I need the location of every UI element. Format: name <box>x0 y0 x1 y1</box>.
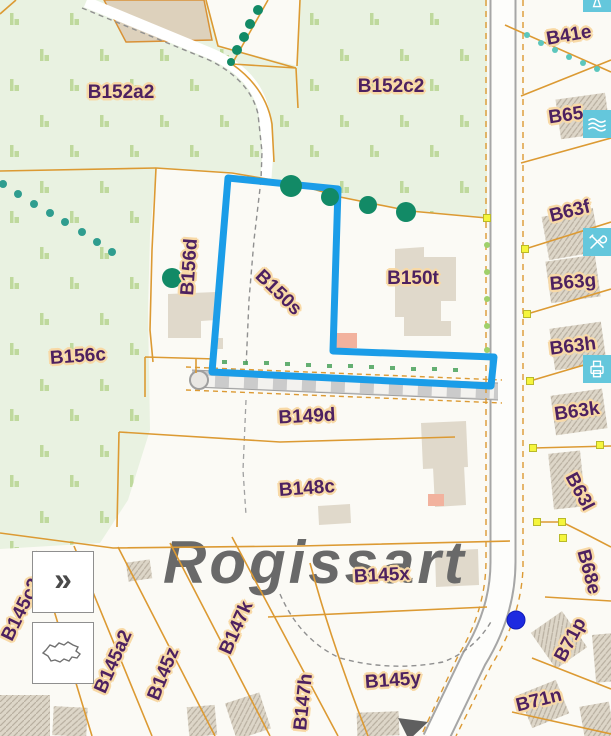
vertex-marker[interactable] <box>484 215 491 222</box>
vertex-marker[interactable] <box>530 445 537 452</box>
print-icon[interactable] <box>583 355 611 383</box>
tree-icon <box>484 347 490 353</box>
tree-icon <box>30 200 38 208</box>
tree-icon <box>14 190 22 198</box>
tree-icon <box>227 58 235 66</box>
map-viewer: Rogissart <box>0 0 611 736</box>
vertex-marker[interactable] <box>522 246 529 253</box>
place-name-label: Rogissart <box>163 529 467 596</box>
layers-icon[interactable] <box>583 110 611 138</box>
tree-icon <box>239 32 249 42</box>
route-icon[interactable] <box>583 0 611 12</box>
tree-icon <box>93 238 101 246</box>
tree-icon <box>396 202 416 222</box>
vertex-marker[interactable] <box>534 519 541 526</box>
expand-panel-button[interactable]: » <box>32 551 94 613</box>
tree-icon <box>280 175 302 197</box>
tree-icon <box>162 268 182 288</box>
tree-icon <box>538 40 544 46</box>
expand-chevrons-icon: » <box>54 563 72 595</box>
tree-icon <box>484 296 490 302</box>
overview-map-button[interactable] <box>32 622 94 684</box>
tree-icon <box>321 188 339 206</box>
tree-icon <box>524 32 530 38</box>
tree-icon <box>232 45 242 55</box>
tree-icon <box>552 47 558 53</box>
location-dot <box>507 611 525 629</box>
location-marker <box>507 611 525 629</box>
vertex-marker[interactable] <box>527 378 534 385</box>
vertex-marker[interactable] <box>524 311 531 318</box>
tree-icon <box>61 218 69 226</box>
tree-icon <box>78 228 86 236</box>
vertex-marker[interactable] <box>560 535 567 542</box>
tree-icon <box>484 269 490 275</box>
tree-icon <box>245 19 255 29</box>
tree-icon <box>484 323 490 329</box>
tree-icon <box>359 196 377 214</box>
tree-icon <box>46 209 54 217</box>
tree-icon <box>253 5 263 15</box>
vertex-marker[interactable] <box>559 519 566 526</box>
tree-icon <box>566 54 572 60</box>
tree-icon <box>108 248 116 256</box>
measure-tools-icon[interactable] <box>583 228 611 256</box>
map-toolbar <box>583 0 611 736</box>
belgium-outline-icon <box>40 634 86 672</box>
tree-icon <box>484 242 490 248</box>
